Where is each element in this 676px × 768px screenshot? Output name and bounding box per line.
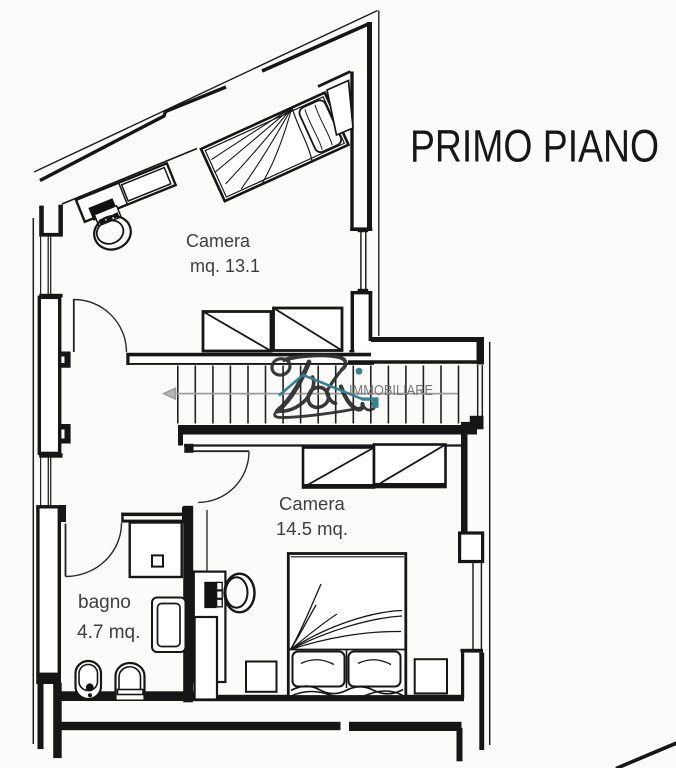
svg-text:4.7 mq.: 4.7 mq.: [77, 622, 140, 643]
svg-text:IMMOBILIARE: IMMOBILIARE: [349, 382, 433, 399]
svg-text:mq. 13.1: mq. 13.1: [190, 256, 260, 276]
svg-text:PRIMO PIANO: PRIMO PIANO: [410, 121, 659, 172]
svg-text:14.5 mq.: 14.5 mq.: [276, 518, 348, 539]
svg-text:bagno: bagno: [78, 592, 131, 613]
svg-text:Camera: Camera: [186, 231, 251, 251]
svg-text:Camera: Camera: [279, 493, 346, 514]
